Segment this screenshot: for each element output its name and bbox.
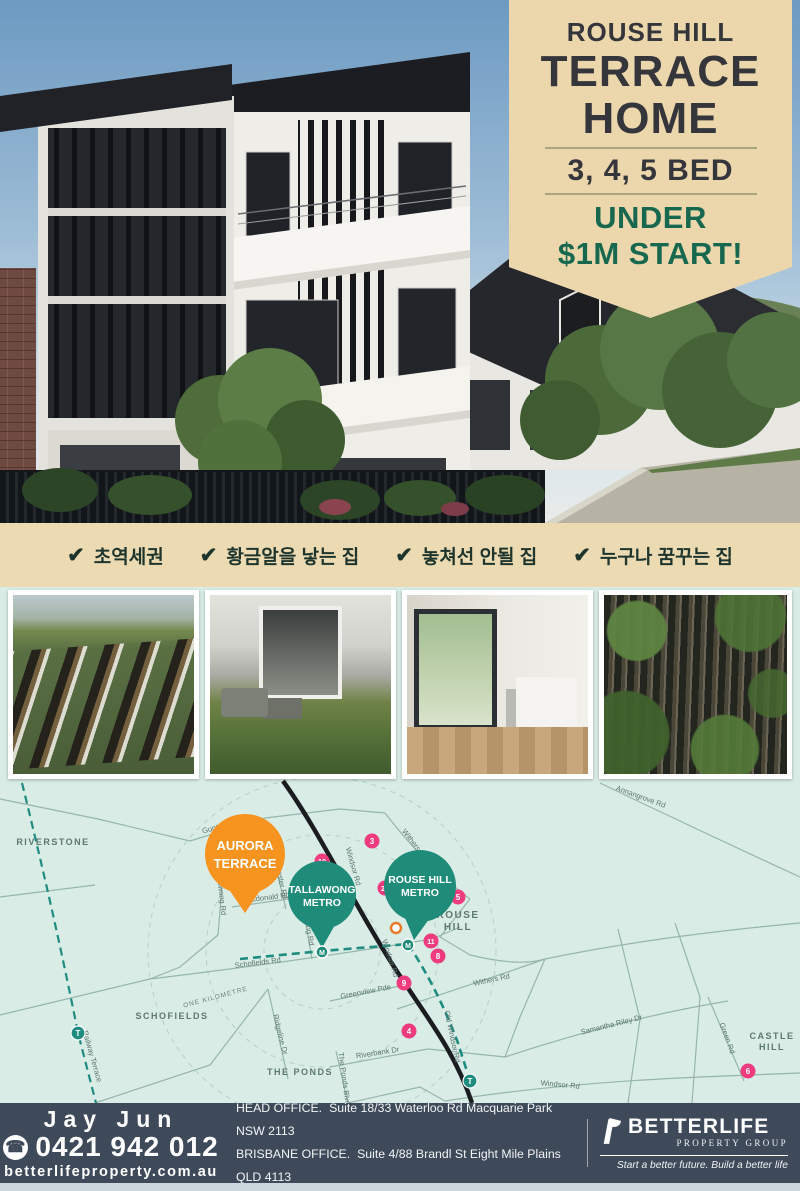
suburb-label-rouse-hill: HILL: [444, 922, 472, 933]
svg-text:11: 11: [427, 939, 435, 946]
feature-item: ✔ 초역세권: [67, 542, 164, 569]
brand-block: BETTERLIFE PROPERTY GROUP Start a better…: [600, 1116, 800, 1171]
svg-text:M: M: [405, 943, 411, 950]
road-label: Old Windsor Rd: [443, 1010, 463, 1064]
office-label: BRISBANE OFFICE.: [236, 1147, 350, 1161]
feature-item: ✔ 놓쳐선 안될 집: [395, 542, 537, 569]
badge-divider: [545, 147, 757, 149]
svg-text:3: 3: [370, 837, 375, 846]
badge-price-line2: $1M START!: [509, 236, 792, 272]
svg-text:METRO: METRO: [401, 887, 439, 899]
svg-text:6: 6: [746, 1067, 751, 1076]
brand-slogan: Start a better future. Build a better li…: [600, 1160, 788, 1171]
train-station-icon: T: [463, 1074, 477, 1088]
feature-label: 황금알을 낳는 집: [226, 542, 359, 569]
feature-label: 놓쳐선 안될 집: [422, 542, 537, 569]
agent-contact-block: Jay Jun ☎ 0421 942 012 betterlifepropert…: [0, 1104, 222, 1182]
svg-text:5: 5: [456, 893, 461, 902]
brand-division: PROPERTY GROUP: [628, 1138, 788, 1148]
amenity-marker: 3: [365, 834, 380, 849]
svg-text:ROUSE HILL: ROUSE HILL: [388, 874, 452, 886]
balcony-image: [604, 595, 787, 774]
amenity-marker: 9: [397, 976, 412, 991]
badge-title-line1: TERRACE: [509, 48, 792, 95]
feature-label: 누구나 꿈꾸는 집: [600, 542, 733, 569]
office-label: HEAD OFFICE.: [236, 1101, 322, 1115]
town-centre-icon: [391, 923, 401, 933]
svg-text:AURORA: AURORA: [216, 838, 274, 853]
feature-label: 초역세권: [94, 542, 164, 569]
svg-text:METRO: METRO: [303, 897, 341, 909]
badge-title-line2: HOME: [509, 95, 792, 142]
suburb-label-castle-hill: CASTLE: [750, 1031, 795, 1041]
brand-divider: [600, 1155, 788, 1156]
road-label: The Ponds Blvd: [336, 1052, 352, 1103]
check-icon: ✔: [395, 545, 413, 566]
road-label: Annangrove Rd: [615, 784, 667, 810]
feature-item: ✔ 황금알을 낳는 집: [200, 542, 360, 569]
brand-name: BETTERLIFE: [628, 1116, 788, 1138]
photo-balcony: [599, 590, 792, 779]
footer-bar: Jay Jun ☎ 0421 942 012 betterlifepropert…: [0, 1103, 800, 1183]
aerial-view-image: [13, 595, 194, 774]
agent-website: betterlifeproperty.com.au: [0, 1162, 222, 1182]
metro-station-icon: M: [402, 939, 414, 951]
check-icon: ✔: [200, 545, 218, 566]
svg-text:4: 4: [407, 1027, 412, 1036]
scale-label: ONE KILOMETRE: [183, 986, 249, 1010]
suburb-label-riverstone: RIVERSTONE: [16, 837, 89, 847]
suburb-label-castle-hill: HILL: [759, 1042, 785, 1052]
road-label: Ridgeline Dr: [271, 1013, 290, 1056]
check-icon: ✔: [573, 545, 591, 566]
suburb-label-schofields: SCHOFIELDS: [135, 1011, 208, 1021]
agent-phone: 0421 942 012: [35, 1132, 218, 1162]
badge-price-line1: UNDER: [509, 200, 792, 236]
map-roads: [0, 783, 800, 1103]
svg-text:TERRACE: TERRACE: [214, 856, 277, 871]
train-station-icon: T: [71, 1026, 85, 1040]
amenity-markers: 3 10 22 5 11 8 9 4 6: [315, 834, 756, 1079]
badge-location: ROUSE HILL: [509, 16, 792, 48]
metro-station-icon: M: [316, 946, 328, 958]
office-addresses: HEAD OFFICE.Suite 18/33 Waterloo Rd Macq…: [222, 1097, 583, 1189]
phone-icon: ☎: [3, 1135, 28, 1160]
agent-name: Jay Jun: [0, 1106, 222, 1132]
amenity-marker: 11: [424, 934, 439, 949]
features-bar: ✔ 초역세권 ✔ 황금알을 낳는 집 ✔ 놓쳐선 안될 집 ✔ 누구나 꿈꾸는 …: [0, 523, 800, 587]
amenity-marker: 4: [402, 1024, 417, 1039]
road-label: Green Rd: [718, 1021, 738, 1055]
footer-divider: [587, 1119, 588, 1167]
office-head: HEAD OFFICE.Suite 18/33 Waterloo Rd Macq…: [236, 1097, 583, 1143]
amenity-marker: 6: [741, 1064, 756, 1079]
photo-aerial-view: [8, 590, 199, 779]
living-interior-image: [407, 595, 588, 774]
feature-item: ✔ 누구나 꿈꾸는 집: [573, 542, 733, 569]
photo-living-interior: [402, 590, 593, 779]
promo-badge: ROUSE HILL TERRACE HOME 3, 4, 5 BED UNDE…: [509, 0, 792, 318]
svg-text:9: 9: [402, 979, 407, 988]
map-section: ONE KILOMETRE Annangrove Rd Withers Rd W…: [0, 587, 800, 1103]
betterlife-logo-icon: [600, 1117, 622, 1150]
check-icon: ✔: [67, 545, 85, 566]
suburb-label-the-ponds: THE PONDS: [267, 1067, 333, 1077]
road-label: Samantha Riley Dr: [580, 1012, 644, 1036]
svg-text:8: 8: [436, 952, 441, 961]
bottom-strip: [0, 1183, 800, 1191]
road-label: Schofields Rd: [234, 955, 281, 970]
road-label: Withers Rd: [472, 971, 510, 988]
badge-beds: 3, 4, 5 BED: [509, 154, 792, 188]
badge-divider: [545, 193, 757, 195]
svg-text:T: T: [468, 1077, 473, 1086]
property-flyer: ROUSE HILL TERRACE HOME 3, 4, 5 BED UNDE…: [0, 0, 800, 1191]
svg-text:M: M: [319, 950, 325, 957]
agent-phone-row: ☎ 0421 942 012: [0, 1132, 222, 1162]
kitchen-island-shape: [516, 677, 578, 738]
courtyard-image: [210, 595, 391, 774]
road-label: Windsor Rd: [540, 1078, 580, 1090]
photo-strip: [0, 590, 800, 779]
amenity-marker: 8: [431, 949, 446, 964]
train-line: [22, 783, 96, 1103]
photo-courtyard: [205, 590, 396, 779]
svg-text:T: T: [76, 1029, 81, 1038]
pin-tallawong-metro: TALLAWONG METRO: [288, 861, 356, 948]
svg-text:TALLAWONG: TALLAWONG: [289, 884, 356, 896]
road-label: Greenview Pde: [339, 982, 391, 1001]
